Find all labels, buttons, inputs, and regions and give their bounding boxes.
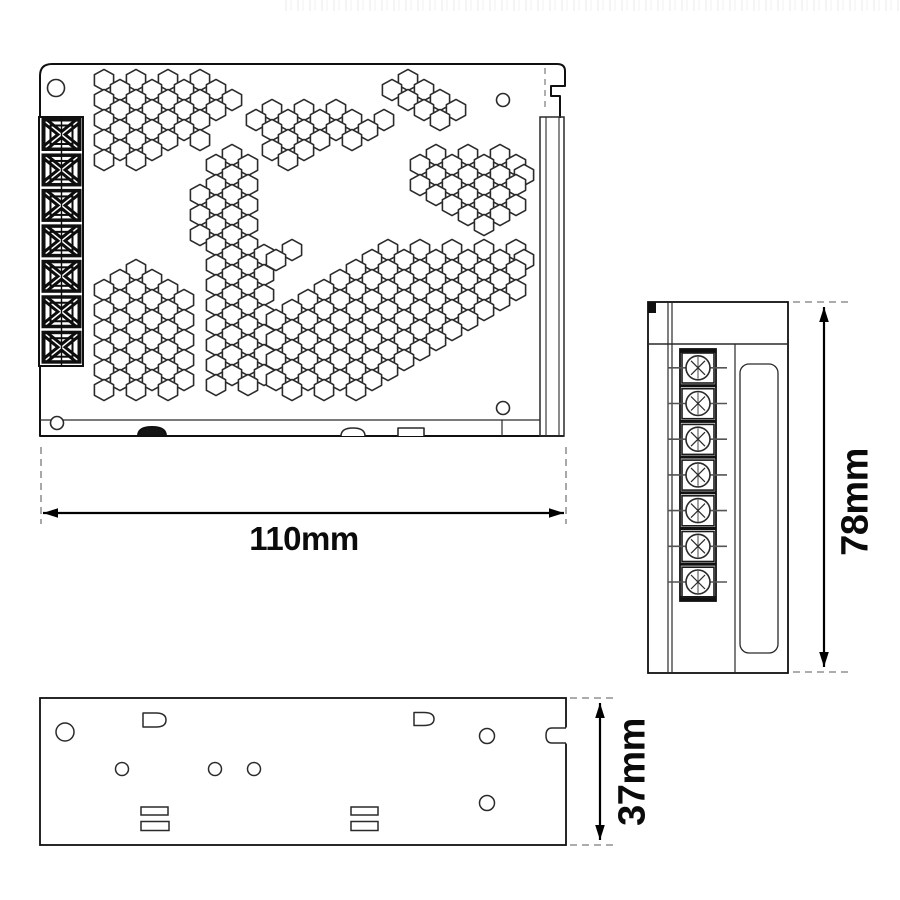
side-view [648, 302, 788, 673]
drawing-stage: 110mm 78mm 37mm [0, 0, 900, 900]
depth-dimension-label: 37mm [612, 718, 655, 826]
width-dimension-label: 110mm [249, 520, 358, 558]
psu-technical-drawing [0, 0, 900, 900]
bottom-view [40, 698, 570, 845]
terminal-strip [39, 117, 83, 366]
vent-hole-pattern [94, 69, 533, 400]
height-dimension-label: 78mm [835, 448, 878, 556]
